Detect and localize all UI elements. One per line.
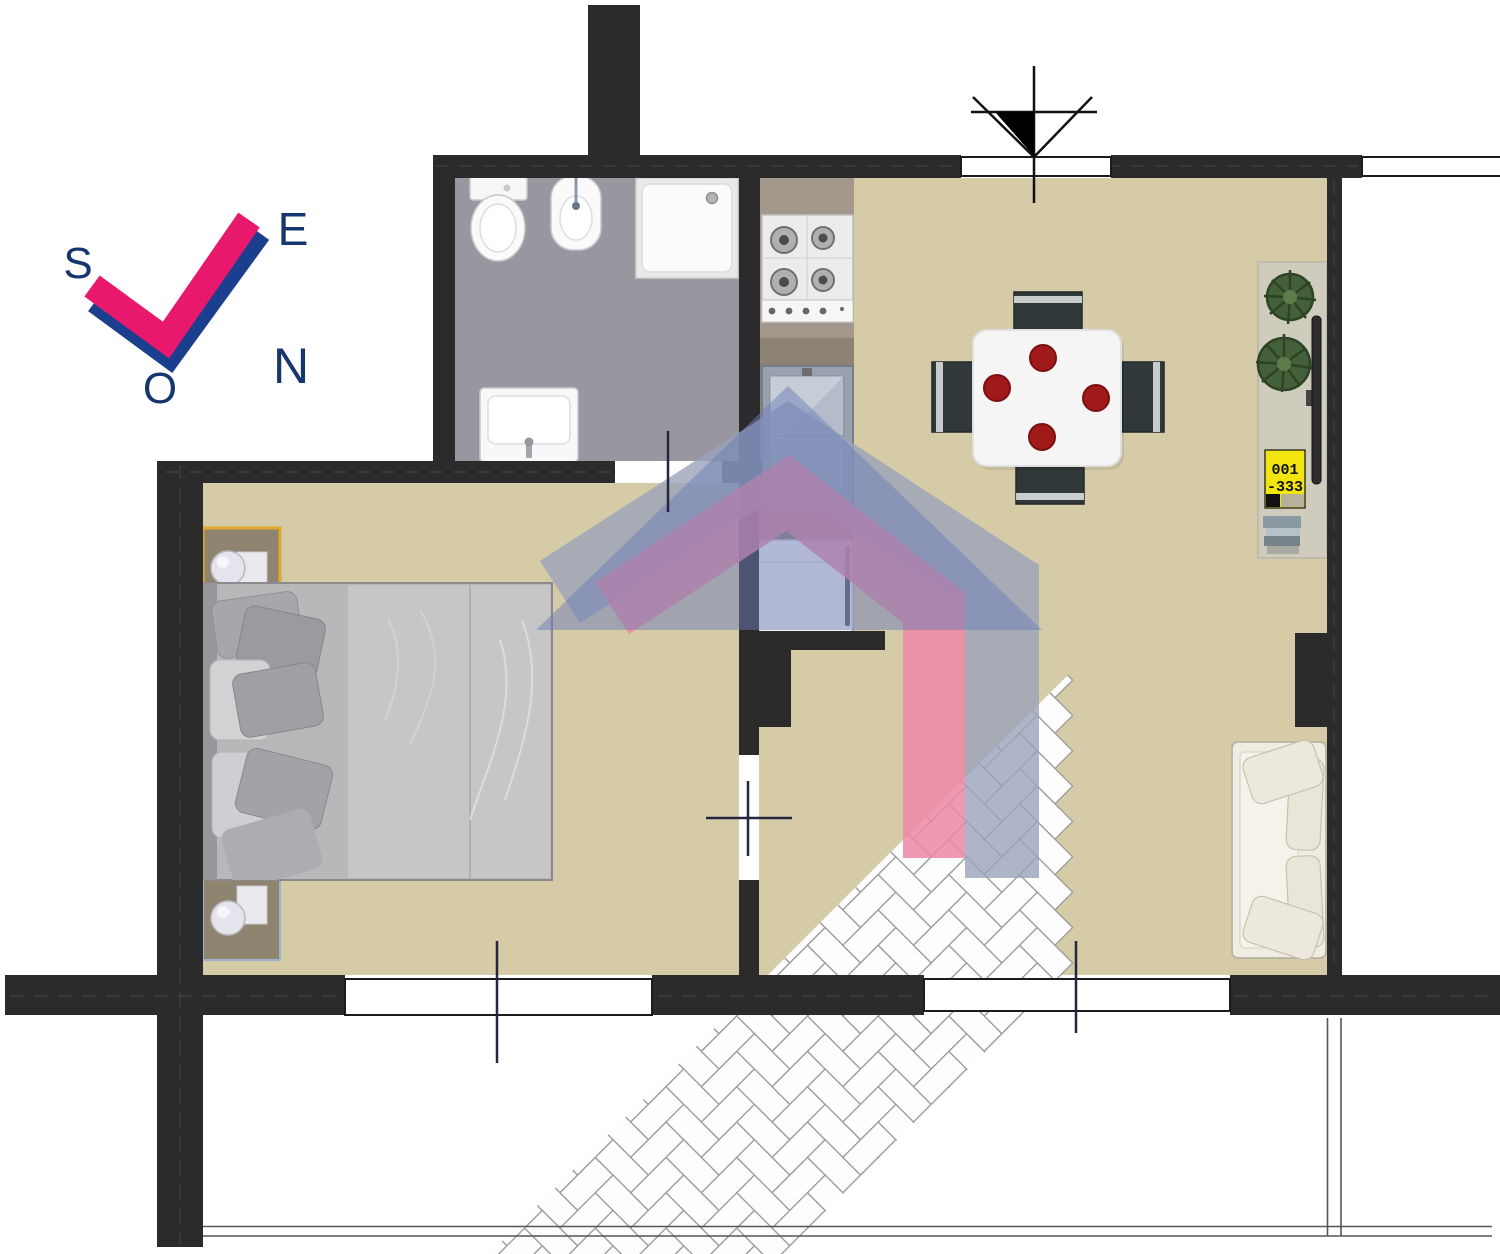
bidet <box>551 176 601 250</box>
sofa <box>1232 738 1326 963</box>
window <box>1362 157 1500 176</box>
tv <box>1312 316 1321 484</box>
drain-icon <box>707 193 718 204</box>
nightstand-bottom <box>203 872 280 960</box>
lamp-icon <box>211 551 245 585</box>
window <box>345 979 652 1015</box>
wall-kitchen-bottom <box>739 631 885 650</box>
wall-bathroom-left <box>433 178 455 461</box>
wall-right-pilaster <box>1295 633 1342 727</box>
wall-kitchen-corner-block <box>739 650 791 727</box>
floor-plan-page: 001 -333 <box>0 0 1500 1254</box>
compass-south-label: S <box>63 239 92 288</box>
wall-bottom-right <box>1230 975 1500 1015</box>
box-number-line1: 001 <box>1271 462 1298 479</box>
wall-top-living-left <box>762 155 961 178</box>
toilet <box>470 176 527 261</box>
compass-rose: S E O N <box>63 203 309 413</box>
bathroom-sink <box>480 388 578 462</box>
magazine-stack <box>1263 516 1301 554</box>
compass-west-label: O <box>143 364 177 413</box>
cooktop <box>762 215 853 322</box>
yellow-box: 001 -333 <box>1265 450 1305 508</box>
duvet <box>348 585 550 878</box>
double-bed <box>203 583 552 891</box>
sideboard: 001 -333 <box>1256 262 1327 558</box>
wall-bottom-left <box>5 975 345 1015</box>
wall-bottom-middle <box>652 975 924 1015</box>
compass-north-label: N <box>273 338 309 394</box>
wall-stub-top <box>588 5 640 157</box>
box-number-line2: -333 <box>1267 479 1303 496</box>
faucet-icon <box>802 368 812 376</box>
wall-bedroom-living-lower <box>739 880 759 975</box>
compass-east-label: E <box>278 203 309 255</box>
shower-tray <box>636 178 738 278</box>
floor-plan-svg: 001 -333 <box>0 0 1500 1254</box>
window <box>961 157 1111 176</box>
lamp-icon <box>211 901 245 935</box>
